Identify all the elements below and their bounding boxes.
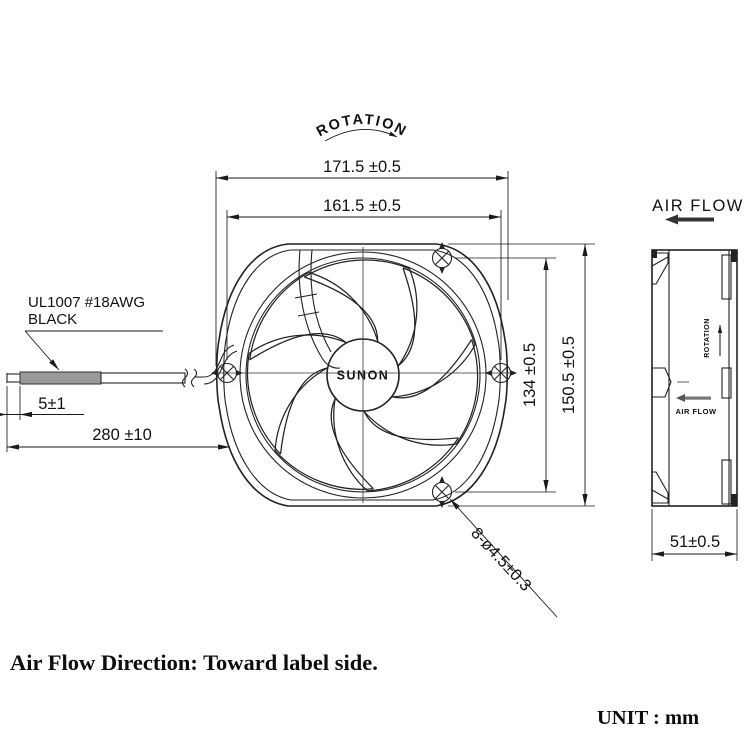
side-air-flow-arrow — [676, 394, 711, 402]
dim-height-outer-label: 150.5 ±0.5 — [560, 336, 578, 414]
side-view: AIR FLOW ROTATION — [652, 197, 744, 561]
dim-depth-label: 51±0.5 — [670, 533, 720, 551]
lead-wire: UL1007 #18AWG BLACK — [7, 294, 237, 387]
fan-technical-drawing: SUNON ROTATION 171.5 ±0.5 161.5 ±0.5 — [0, 0, 750, 750]
side-rotation-label: ROTATION — [704, 318, 711, 358]
holes-callout: 8-ø4.5±0.3 — [450, 499, 557, 617]
air-flow-direction-note: Air Flow Direction: Toward label side. — [10, 650, 378, 675]
side-air-flow-label: AIR FLOW — [675, 407, 716, 416]
dim-width-outer-label: 171.5 ±0.5 — [323, 158, 401, 176]
wire-spec-line2: BLACK — [28, 311, 77, 328]
fan-drawing-page: SUNON ROTATION 171.5 ±0.5 161.5 ±0.5 — [0, 0, 750, 750]
air-flow-label: AIR FLOW — [652, 197, 744, 215]
dim-strip-label: 5±1 — [38, 395, 65, 413]
dim-width-outer: 171.5 ±0.5 — [216, 158, 508, 366]
wire-sleeve — [101, 373, 185, 383]
air-flow-arrow — [665, 215, 714, 225]
side-body — [652, 250, 737, 506]
front-view: SUNON — [211, 221, 517, 520]
rotation-label-group: ROTATION — [314, 112, 410, 141]
dim-wire-length-label: 280 ±10 — [92, 426, 152, 444]
dim-depth: 51±0.5 — [652, 509, 737, 561]
side-right-notches — [722, 255, 731, 504]
unit-label: UNIT : mm — [597, 707, 699, 729]
wire-insulation-gray — [20, 372, 101, 384]
wire-spec-line1: UL1007 #18AWG — [28, 294, 145, 311]
dim-hole-span-h: 161.5 ±0.5 — [227, 197, 501, 360]
dim-hole-span-v: 134 ±0.5 — [455, 258, 556, 492]
dim-wire-length: 280 ±10 — [7, 426, 230, 447]
side-left-tabs — [652, 253, 671, 503]
holes-callout-label: 8-ø4.5±0.3 — [467, 524, 535, 595]
dim-hole-span-h-label: 161.5 ±0.5 — [323, 197, 401, 215]
dim-strip-length: 5±1 — [0, 386, 84, 452]
dim-hole-span-v-label: 134 ±0.5 — [521, 343, 539, 407]
